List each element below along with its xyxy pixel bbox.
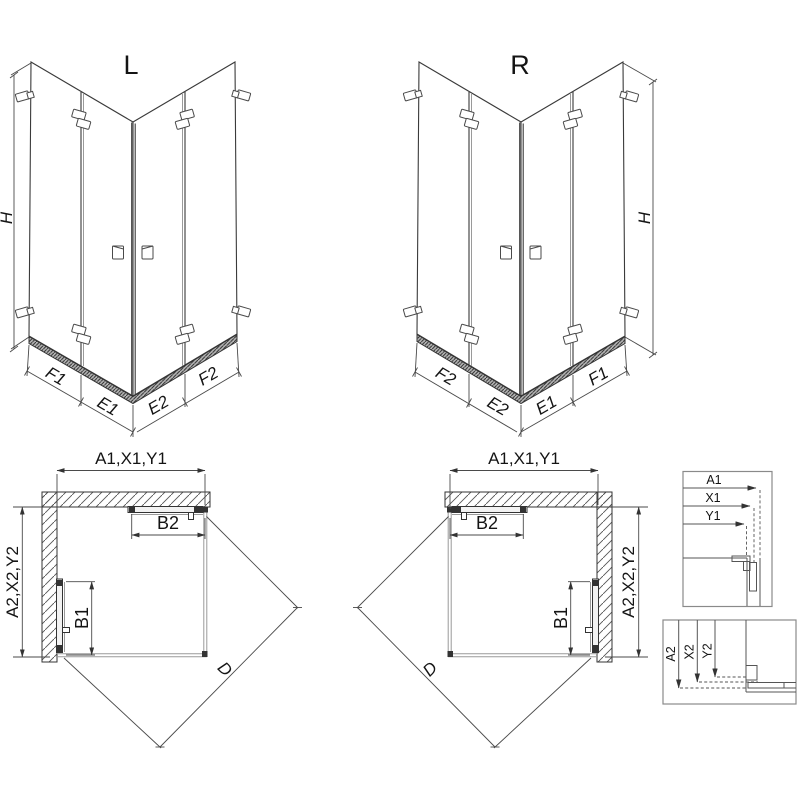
dim-diagonal: D — [353, 517, 591, 749]
detail-a1-label: A1 — [706, 473, 721, 487]
dim-diagonal: D — [64, 517, 302, 749]
depth-label: A2,X2,Y2 — [3, 546, 22, 618]
dim-door-top: B2 — [450, 513, 523, 539]
door-side-label: B1 — [72, 607, 92, 629]
door-knob-left — [113, 246, 124, 259]
segment-label-f2: F2 — [432, 363, 459, 390]
segment-label-e1: E1 — [532, 392, 560, 419]
detail-box-depth: A2 X2 Y2 — [663, 620, 796, 704]
dim-door-top: B2 — [132, 513, 205, 539]
wall-side — [42, 492, 57, 662]
door-handle — [63, 628, 70, 633]
variant-title-right: R — [510, 50, 530, 80]
wall-top — [42, 492, 210, 507]
segment-label-e2: E2 — [144, 392, 172, 419]
shower-enclosure-diagram: L H — [0, 0, 800, 800]
detail-y2-label: Y2 — [701, 643, 715, 658]
dim-door-side: B1 — [551, 582, 590, 655]
door-handle — [189, 513, 194, 520]
height-label: H — [635, 211, 654, 224]
door-front-label: B2 — [157, 513, 179, 533]
variant-title-left: L — [123, 50, 138, 80]
segment-label-e1: E1 — [94, 393, 122, 420]
segment-label-e2: E2 — [484, 393, 512, 420]
detail-y1-label: Y1 — [705, 509, 720, 523]
door-knob-left — [501, 246, 512, 259]
glass-section — [750, 563, 757, 592]
width-label: A1,X1,Y1 — [95, 449, 167, 468]
detail-a2-label: A2 — [664, 646, 678, 661]
door-knob-right — [142, 246, 153, 259]
wall-profile — [746, 666, 757, 681]
detail-box-width: A1 X1 Y1 — [683, 472, 772, 607]
diagonal-label: D — [214, 658, 236, 680]
depth-label: A2,X2,Y2 — [619, 546, 638, 618]
glass-section — [748, 683, 784, 689]
height-label: H — [0, 211, 16, 224]
corner-foot — [202, 651, 208, 657]
detail-x1-label: X1 — [705, 491, 720, 505]
segment-label-f2: F2 — [195, 363, 222, 390]
wall-side — [597, 492, 612, 662]
segment-label-f1: F1 — [42, 363, 69, 389]
door-handle — [462, 513, 467, 520]
diagonal-label: D — [419, 658, 441, 680]
door-side — [57, 579, 70, 653]
detail-x2-label: X2 — [683, 644, 697, 659]
plan-view-left: A1,X1,Y1 A2,X2,Y2 B2 B1 D — [3, 449, 302, 748]
door-handle — [586, 628, 593, 633]
dim-door-side: B1 — [66, 582, 95, 655]
wall-top — [445, 492, 612, 507]
door-side-label: B1 — [551, 607, 571, 629]
door-front-label: B2 — [476, 513, 498, 533]
iso-view-right: R H — [403, 50, 657, 437]
iso-view-left: L H — [0, 50, 251, 437]
diagram-canvas: L H — [0, 0, 800, 800]
width-label: A1,X1,Y1 — [488, 449, 560, 468]
door-side — [586, 579, 599, 653]
segment-label-f1: F1 — [585, 363, 612, 389]
plan-view-right: A1,X1,Y1 A2,X2,Y2 B2 B1 D — [353, 449, 648, 748]
door-knob-right — [530, 246, 541, 259]
corner-foot — [448, 651, 454, 657]
